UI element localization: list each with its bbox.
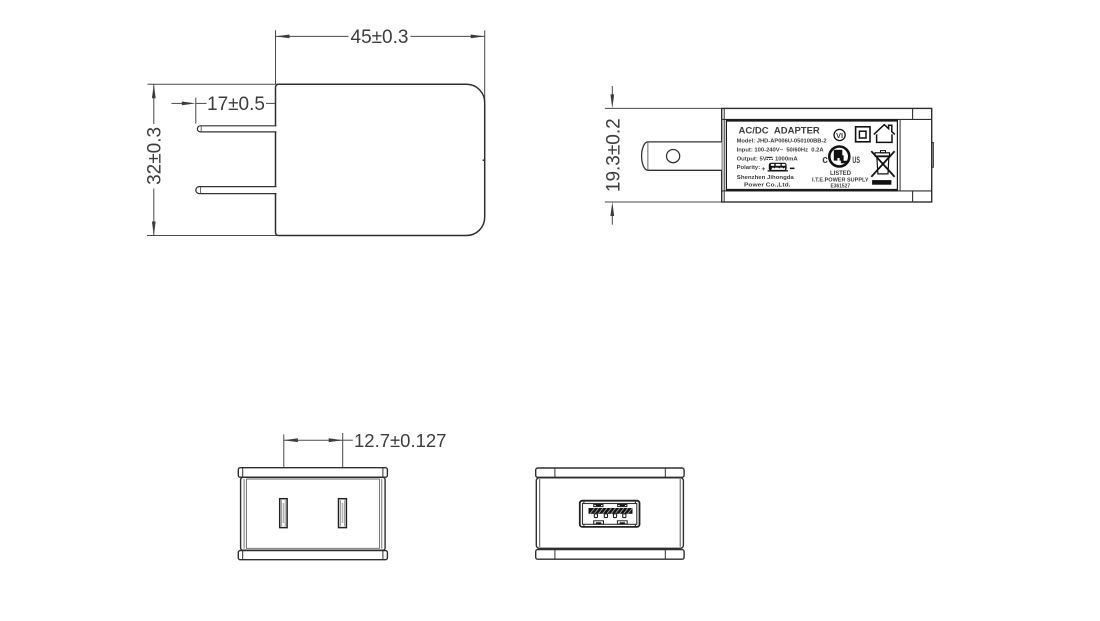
svg-text:Input: 100-240V~ 50/60Hz 0.2: Input: 100-240V~ 50/60Hz 0.2A <box>737 147 825 153</box>
svg-text:12.7±0.127: 12.7±0.127 <box>354 430 446 451</box>
svg-text:E361527: E361527 <box>831 183 851 189</box>
svg-text:Shenzhen Jihongda: Shenzhen Jihongda <box>737 175 795 181</box>
svg-text:LISTED: LISTED <box>830 170 851 177</box>
svg-text:c: c <box>822 154 828 166</box>
svg-text:32±0.3: 32±0.3 <box>145 127 166 185</box>
svg-text:Power Co.,Ltd.: Power Co.,Ltd. <box>744 183 791 189</box>
svg-text:US: US <box>852 155 860 166</box>
svg-text:Model: JHD-AP006U-050100BB-2: Model: JHD-AP006U-050100BB-2 <box>737 138 828 144</box>
svg-text:Polarity:: Polarity: <box>737 165 761 171</box>
svg-text:45±0.3: 45±0.3 <box>351 27 409 48</box>
svg-text:+: + <box>762 166 766 173</box>
svg-text:1000mA: 1000mA <box>775 156 798 162</box>
svg-text:Output: 5V: Output: 5V <box>737 156 767 162</box>
svg-text:17±0.5: 17±0.5 <box>207 94 265 115</box>
svg-text:AC/DC ADAPTER: AC/DC ADAPTER <box>739 125 820 136</box>
svg-text:19.3±0.2: 19.3±0.2 <box>604 118 625 192</box>
svg-text:VI: VI <box>836 131 843 140</box>
